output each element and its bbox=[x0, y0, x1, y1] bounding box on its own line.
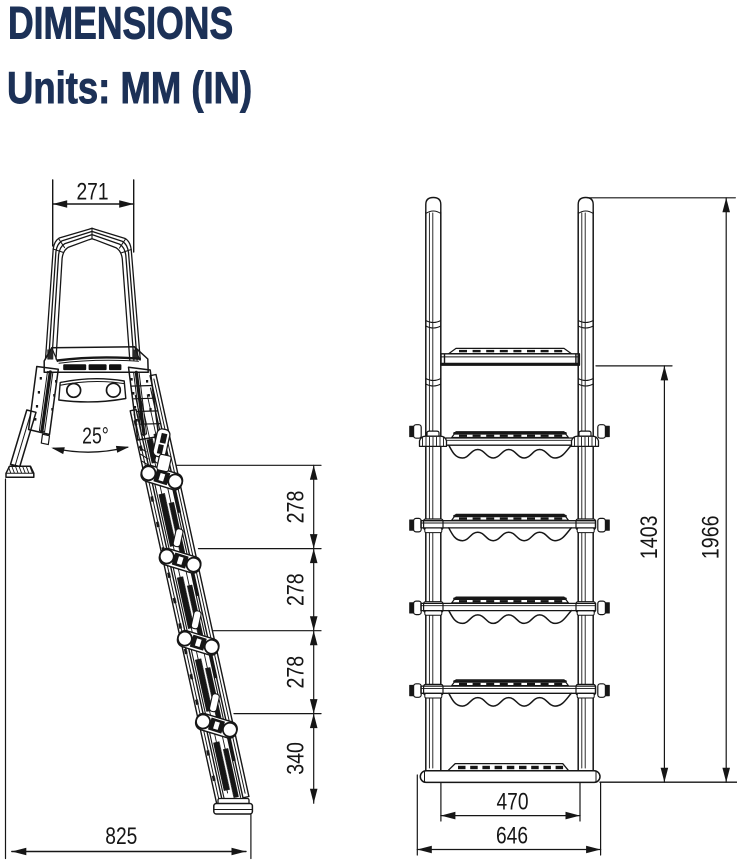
svg-text:278: 278 bbox=[281, 573, 309, 606]
svg-text:278: 278 bbox=[281, 656, 309, 689]
svg-text:646: 646 bbox=[496, 821, 528, 849]
svg-text:25°: 25° bbox=[82, 423, 109, 449]
svg-text:1966: 1966 bbox=[697, 516, 725, 560]
svg-text:825: 825 bbox=[105, 822, 137, 850]
svg-text:470: 470 bbox=[496, 787, 528, 815]
svg-text:DIMENSIONS: DIMENSIONS bbox=[8, 0, 233, 48]
svg-text:340: 340 bbox=[281, 742, 309, 775]
svg-text:Units: MM (IN): Units: MM (IN) bbox=[7, 62, 252, 112]
svg-text:278: 278 bbox=[281, 491, 309, 524]
svg-text:271: 271 bbox=[76, 177, 108, 205]
svg-text:1403: 1403 bbox=[635, 516, 663, 560]
